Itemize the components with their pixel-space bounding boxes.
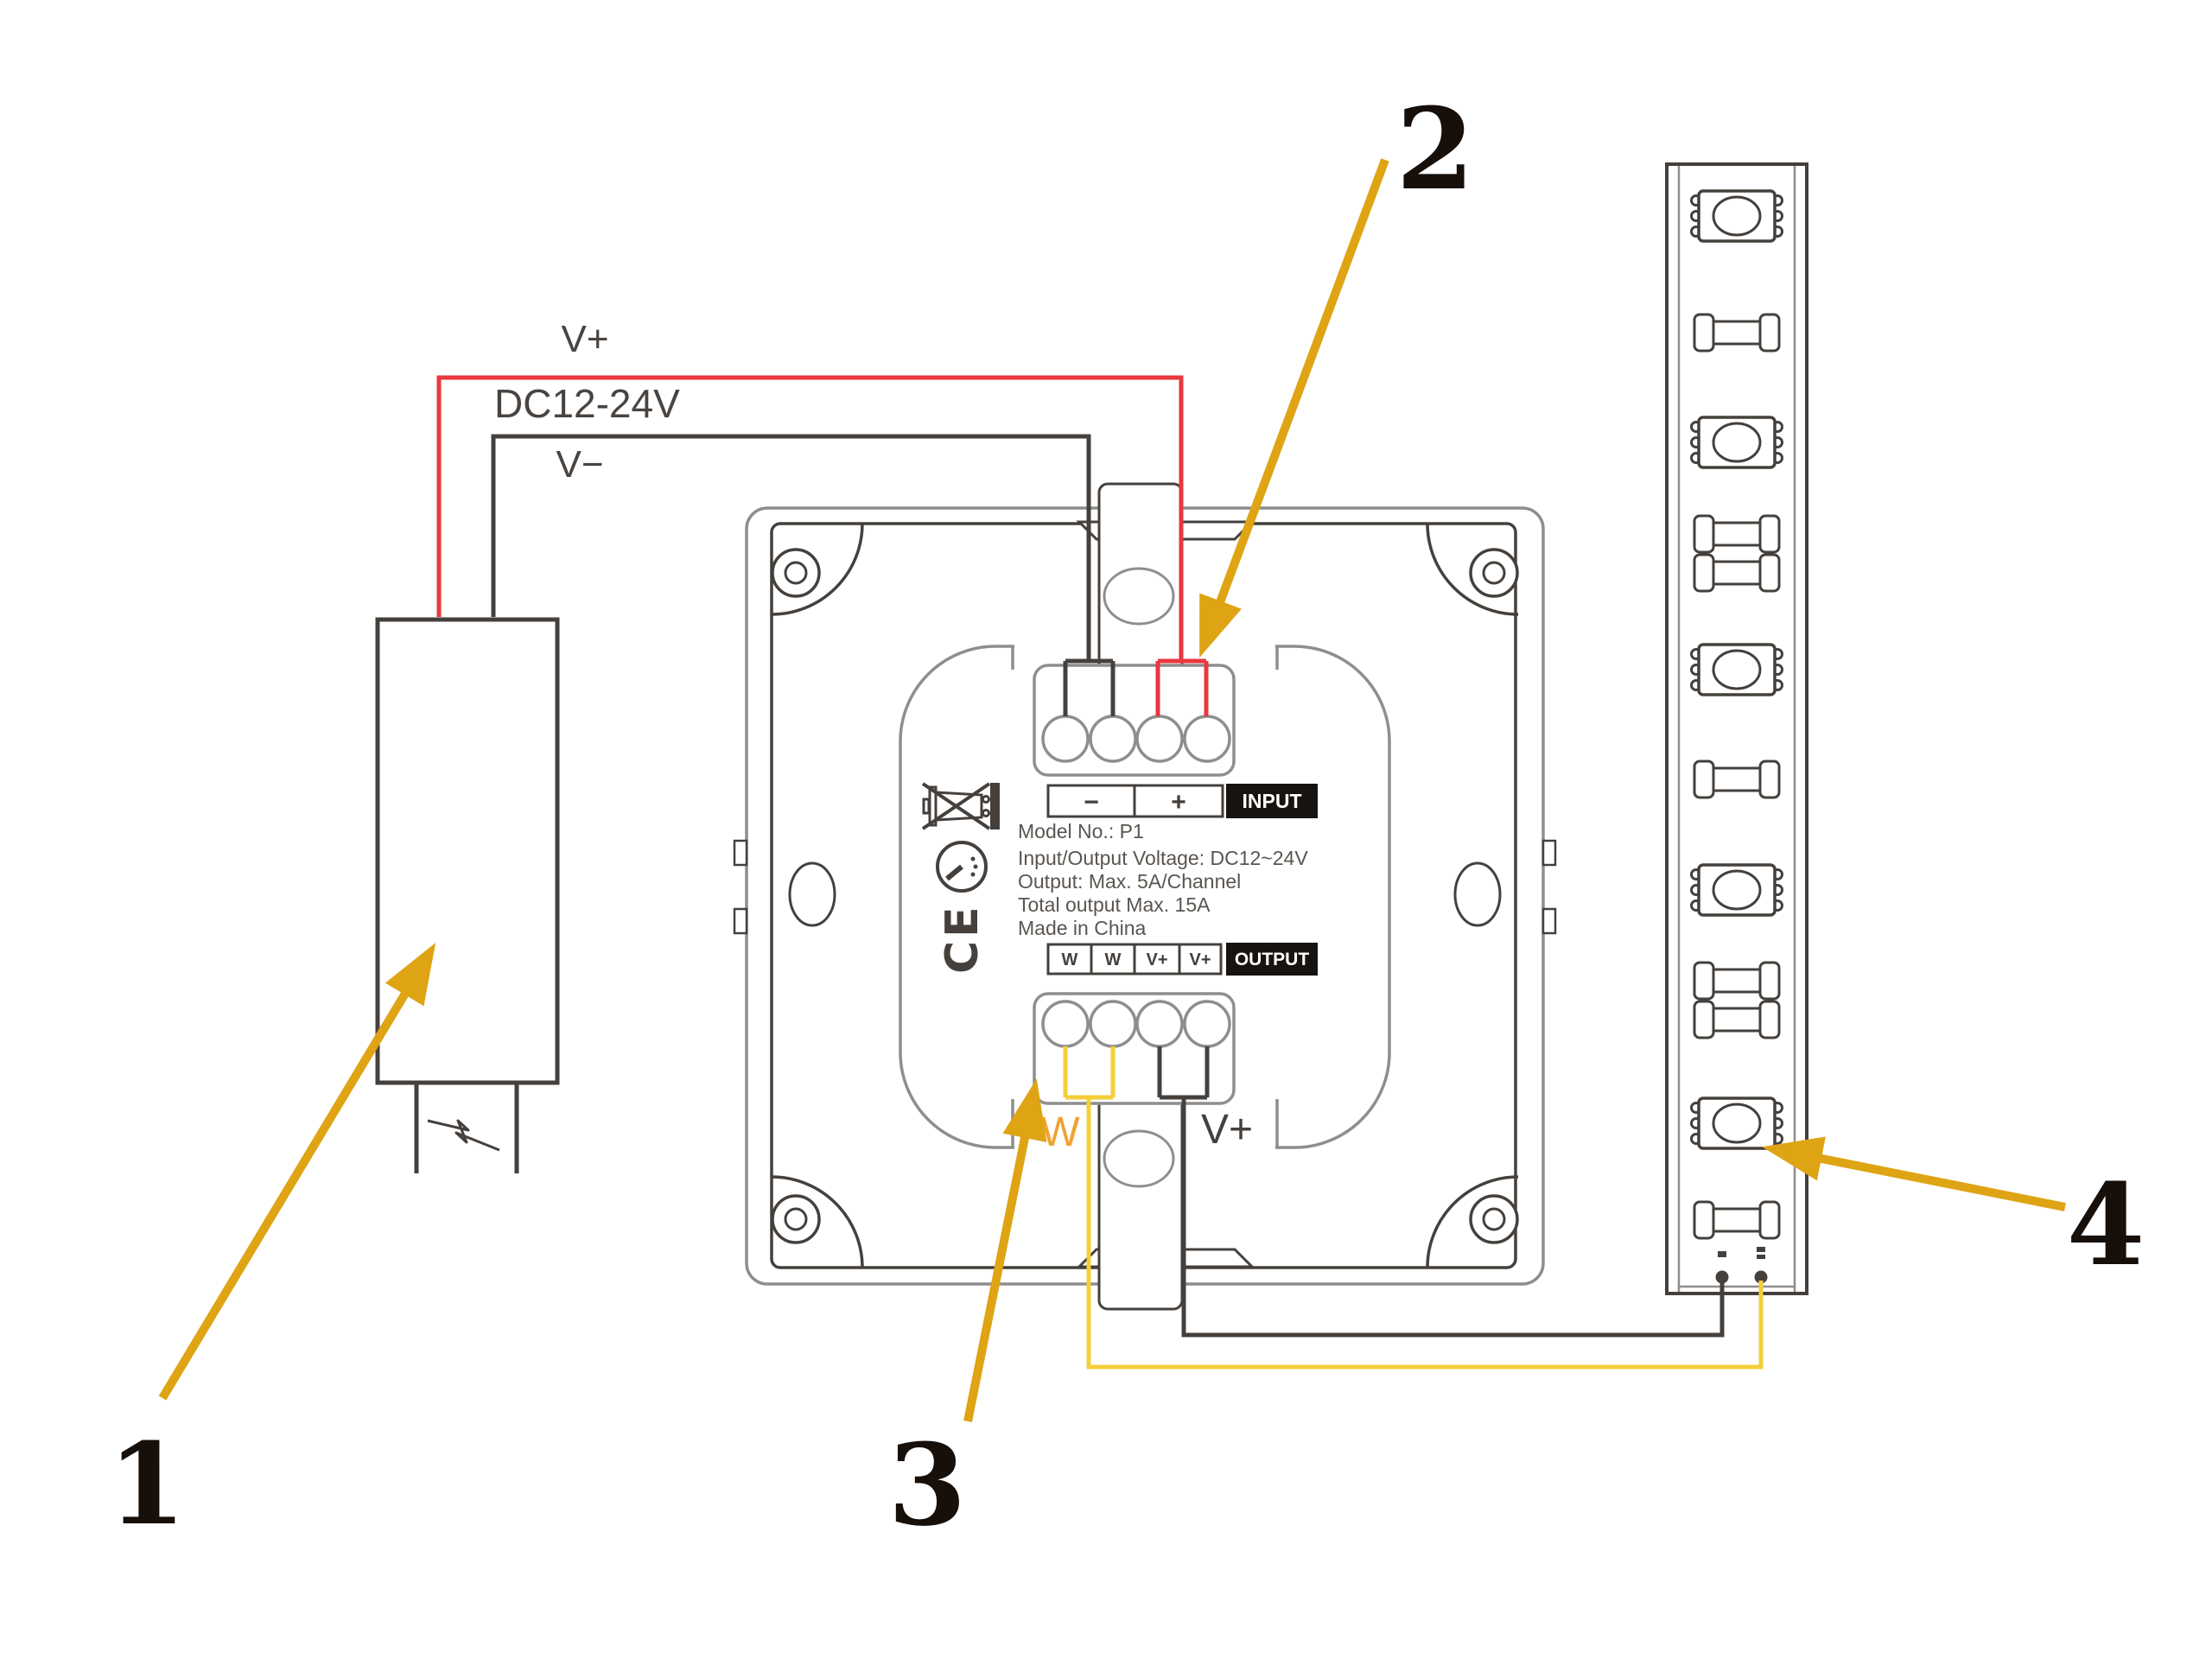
lightning-bolt-icon: [428, 1121, 499, 1150]
label-output-w: W: [1040, 1109, 1080, 1155]
output-term-v1: V+: [1146, 950, 1167, 969]
touch-panel: − + INPUT Model No.: P1 Input/Output Vol…: [734, 484, 1555, 1309]
panel-right-notch-2: [1543, 909, 1555, 933]
output-term-w1: W: [1062, 950, 1078, 969]
label-supply-voltage: DC12-24V: [494, 381, 680, 426]
input-plus-sign: +: [1171, 788, 1186, 817]
arrow-4-led-strip: [1774, 1149, 2065, 1207]
ce-mark-icon: CE: [937, 903, 988, 974]
panel-right-oval-hole: [1455, 863, 1500, 925]
led-chip: [1692, 417, 1783, 467]
input-bar: − + INPUT: [1048, 784, 1318, 818]
bottom-tab-oval-hole: [1104, 1131, 1173, 1186]
panel-right-notch-1: [1543, 841, 1555, 865]
panel-left-oval-hole: [790, 863, 835, 925]
power-supply: [378, 620, 557, 1173]
led-strip: [1667, 164, 1807, 1294]
output-bar: W W V+ V+ OUTPUT: [1048, 943, 1318, 976]
panel-left-notch-2: [734, 909, 747, 933]
callout-number-4: 4: [2067, 1159, 2145, 1291]
led-chip: [1692, 645, 1783, 695]
spec-voltage: Input/Output Voltage: DC12~24V: [1018, 847, 1308, 869]
panel-left-notch-1: [734, 841, 747, 865]
arrow-1-power-supply: [162, 953, 429, 1398]
power-supply-body: [378, 620, 557, 1083]
label-output-vplus: V+: [1201, 1107, 1253, 1153]
callout-number-1: 1: [108, 1418, 186, 1550]
spec-model: Model No.: P1: [1018, 820, 1144, 842]
callout-number-2: 2: [1396, 83, 1474, 215]
input-bar-label: INPUT: [1243, 790, 1302, 812]
output-term-v2: V+: [1189, 950, 1211, 969]
led-chip: [1692, 865, 1783, 915]
led-chip: [1692, 1098, 1783, 1148]
led-chip: [1692, 191, 1783, 241]
wiring-diagram: − + INPUT Model No.: P1 Input/Output Vol…: [0, 0, 2212, 1659]
spec-output: Output: Max. 5A/Channel: [1018, 870, 1241, 893]
top-tab-oval-hole: [1104, 569, 1173, 624]
label-v-minus: V−: [556, 443, 603, 486]
input-minus-sign: −: [1084, 788, 1099, 817]
output-bar-label: OUTPUT: [1235, 950, 1310, 969]
output-term-w2: W: [1105, 950, 1122, 969]
callout-number-3: 3: [888, 1419, 966, 1551]
spec-total: Total output Max. 15A: [1018, 893, 1211, 916]
spec-origin: Made in China: [1018, 917, 1147, 939]
label-v-plus: V+: [561, 318, 608, 360]
